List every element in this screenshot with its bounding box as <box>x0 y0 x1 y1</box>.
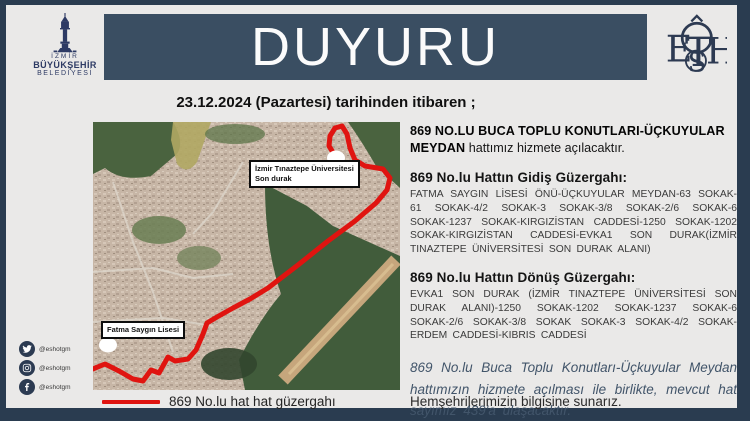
svg-text:H: H <box>706 29 727 72</box>
outbound-heading: 869 No.lu Hattın Gidiş Güzergahı: <box>410 170 737 185</box>
fleet-count-note: 869 No.lu Buca Toplu Konutları-Üçkuyular… <box>410 357 737 421</box>
page-title: DUYURU <box>251 20 500 74</box>
announcement-text: 869 NO.LU BUCA TOPLU KONUTLARI-ÜÇKUYULAR… <box>410 123 737 421</box>
twitter-icon <box>19 341 35 357</box>
instagram-icon <box>19 360 35 376</box>
map-label-school: Fatma Saygın Lisesi <box>101 321 185 339</box>
terminus-marker-school <box>99 338 117 353</box>
map-legend: 869 No.lu hat hat güzergahı <box>102 394 336 409</box>
social-row-instagram: @eshotgm <box>19 360 71 376</box>
route-map: İzmir Tınaztepe Üniversitesi Son durak F… <box>93 122 400 390</box>
map-label-university-line2: Son durak <box>255 174 354 184</box>
effective-date: 23.12.2024 (Pazartesi) tarihinden itibar… <box>116 94 536 111</box>
twitter-handle: @eshotgm <box>39 346 71 353</box>
legend-label: 869 No.lu hat hat güzergahı <box>169 394 336 409</box>
facebook-handle: @eshotgm <box>39 384 71 391</box>
title-banner: DUYURU <box>104 14 647 80</box>
poster-card: İZMİR BÜYÜKŞEHİR BELEDİYESİ DUYURU E T H… <box>6 5 737 408</box>
map-label-university-line1: İzmir Tınaztepe Üniversitesi <box>255 164 354 174</box>
outbound-route-list: FATMA SAYGIN LİSESİ ÖNÜ-ÜÇKUYULAR MEYDAN… <box>410 188 737 257</box>
return-heading: 869 No.lu Hattın Dönüş Güzergahı: <box>410 270 737 285</box>
eshot-monogram-icon: E T H S <box>663 13 727 81</box>
facebook-icon <box>19 379 35 395</box>
izmir-logo-line2: BÜYÜKŞEHİR <box>33 61 97 70</box>
social-row-facebook: @eshotgm <box>19 379 71 395</box>
map-label-university-stop: İzmir Tınaztepe Üniversitesi Son durak <box>249 160 360 188</box>
svg-text:S: S <box>688 48 707 79</box>
izmir-logo-line3: BELEDİYESİ <box>37 70 93 77</box>
social-row-twitter: @eshotgm <box>19 341 71 357</box>
closing-line: Hemşehrilerimizin bilgisine sunarız. <box>410 394 737 409</box>
return-route-list: EVKA1 SON DURAK (İZMİR TINAZTEPE ÜNİVERS… <box>410 288 737 343</box>
announcement-headline: 869 NO.LU BUCA TOPLU KONUTLARI-ÜÇKUYULAR… <box>410 123 737 157</box>
clock-tower-icon <box>50 13 80 53</box>
headline-rest: hattımız hizmete açılacaktır. <box>469 141 625 155</box>
social-media-links: @eshotgm @eshotgm @eshotgm <box>19 341 71 398</box>
route-line-sample <box>102 400 160 404</box>
instagram-handle: @eshotgm <box>39 365 71 372</box>
izmir-municipality-logo: İZMİR BÜYÜKŞEHİR BELEDİYESİ <box>16 12 114 84</box>
eshot-logo: E T H S <box>652 10 738 84</box>
